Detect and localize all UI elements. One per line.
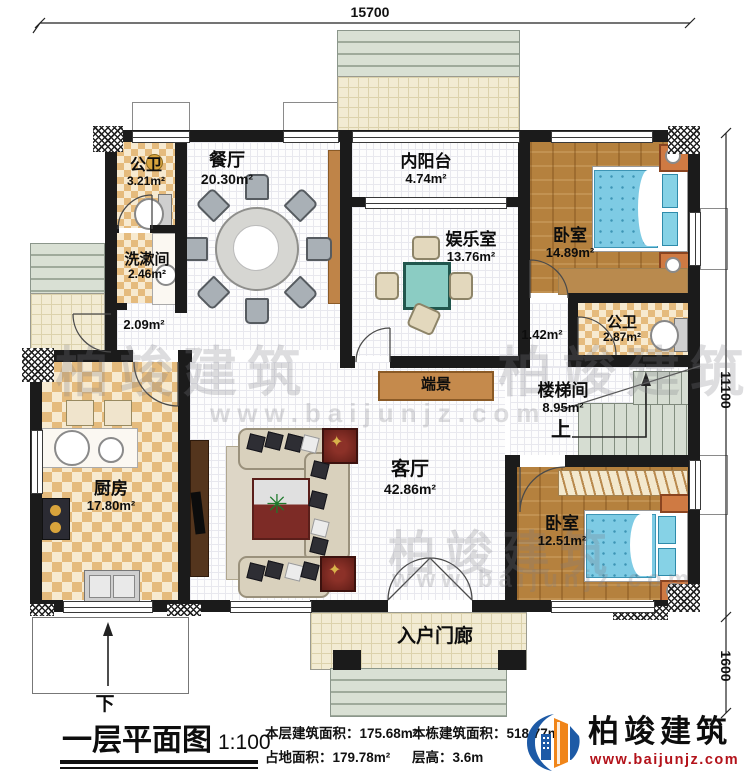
plan-scale: 1:100	[218, 731, 271, 755]
pillow	[662, 212, 678, 246]
column-pier	[668, 126, 700, 154]
dim-top: 15700	[340, 4, 400, 20]
flower-icon: ✦	[328, 562, 341, 580]
wardrobe	[558, 470, 688, 496]
title-underline	[60, 767, 258, 769]
bay-window	[698, 455, 728, 515]
stat-floor-area: 本层建筑面积：175.68m²	[265, 722, 417, 742]
rear-porch-steps	[337, 30, 520, 78]
window	[689, 212, 701, 266]
sink-icon	[54, 430, 90, 466]
entry-steps	[330, 668, 507, 717]
chair-icon	[245, 298, 269, 324]
watermark-url: www.baijunjz.com	[392, 566, 695, 594]
window	[689, 460, 701, 510]
mahjong-table	[403, 262, 451, 310]
sink-icon	[98, 437, 124, 463]
console-table: 端景	[378, 371, 494, 401]
room-label-corridor: 1.42m²	[516, 328, 568, 343]
room-label-kitchen: 厨房 17.80m²	[70, 479, 152, 513]
room-label-living: 客厅 42.86m²	[366, 459, 454, 497]
watermark-text: 柏竣建筑	[55, 328, 311, 407]
window	[132, 131, 190, 143]
window	[352, 131, 520, 143]
column-pier	[93, 126, 123, 152]
double-sink-icon	[84, 570, 140, 602]
window	[31, 430, 43, 494]
watermark-url: www.baijunjz.com	[210, 398, 546, 429]
wall	[310, 600, 388, 612]
chair-icon	[375, 272, 399, 300]
column-pier	[22, 348, 54, 382]
company-logo-icon	[524, 710, 582, 774]
chair-icon	[449, 272, 473, 300]
plan-title: 一层平面图	[62, 724, 212, 759]
nightstand	[660, 494, 690, 513]
window	[230, 601, 312, 613]
ramp-down-label: 下	[90, 694, 120, 716]
column-pier	[30, 604, 54, 616]
window	[551, 601, 655, 613]
window	[551, 131, 653, 143]
console-label: 端景	[380, 373, 492, 397]
stat-footprint: 占地面积：179.78m²	[265, 746, 390, 766]
room-label-hall: 2.09m²	[112, 318, 176, 333]
column-pier	[167, 604, 201, 616]
chair-icon	[306, 237, 332, 261]
flower-icon: ✦	[330, 434, 343, 452]
room-label-bath2: 公卫 2.87m²	[590, 314, 654, 345]
title-underline	[60, 760, 258, 764]
room-label-porch: 入户门廊	[362, 626, 508, 648]
porch-pier	[333, 650, 361, 670]
company-name: 柏竣建筑	[588, 714, 732, 750]
room-label-wash: 洗漱间 2.46m²	[110, 251, 184, 282]
room-label-balcony: 内阳台 4.74m²	[386, 152, 466, 186]
room-label-dining: 餐厅 20.30m²	[188, 150, 266, 187]
wall	[340, 130, 352, 368]
room-label-bath1: 公卫 3.21m²	[117, 157, 175, 189]
room-label-rec: 娱乐室 13.76m²	[428, 230, 514, 264]
room-label-bed1: 卧室 14.89m²	[534, 226, 606, 260]
window	[63, 601, 153, 613]
wall	[565, 455, 700, 467]
stair-up-label: 上	[546, 419, 576, 442]
room-label-bed2: 卧室 12.51m²	[526, 514, 598, 548]
pillow	[662, 174, 678, 208]
floor-plan: ✳ ✦ ✦ 端景	[0, 0, 750, 783]
side-porch-steps	[30, 243, 105, 295]
stove-icon	[42, 498, 70, 540]
room-label-stair-area: 8.95m²	[531, 401, 595, 416]
wall	[568, 293, 700, 303]
pillow	[658, 516, 676, 544]
lamp-icon	[665, 257, 681, 273]
dim-right: 11100	[718, 360, 734, 420]
room-label-stair: 楼梯间	[526, 381, 600, 401]
bay-window	[700, 208, 728, 270]
stat-floor-height: 层高：3.6m	[412, 746, 483, 766]
window	[365, 197, 507, 209]
driveway-ramp	[32, 617, 189, 694]
rear-porch-tile	[337, 76, 520, 134]
dim-bottom-right: 1600	[718, 636, 734, 696]
window	[283, 131, 339, 143]
porch-pier	[498, 650, 526, 670]
plant-icon: ✳	[266, 490, 288, 520]
bed-sheet	[638, 170, 658, 246]
company-url: www.baijunjz.com	[590, 752, 739, 769]
dining-table-top	[233, 225, 279, 271]
wall	[175, 130, 187, 313]
